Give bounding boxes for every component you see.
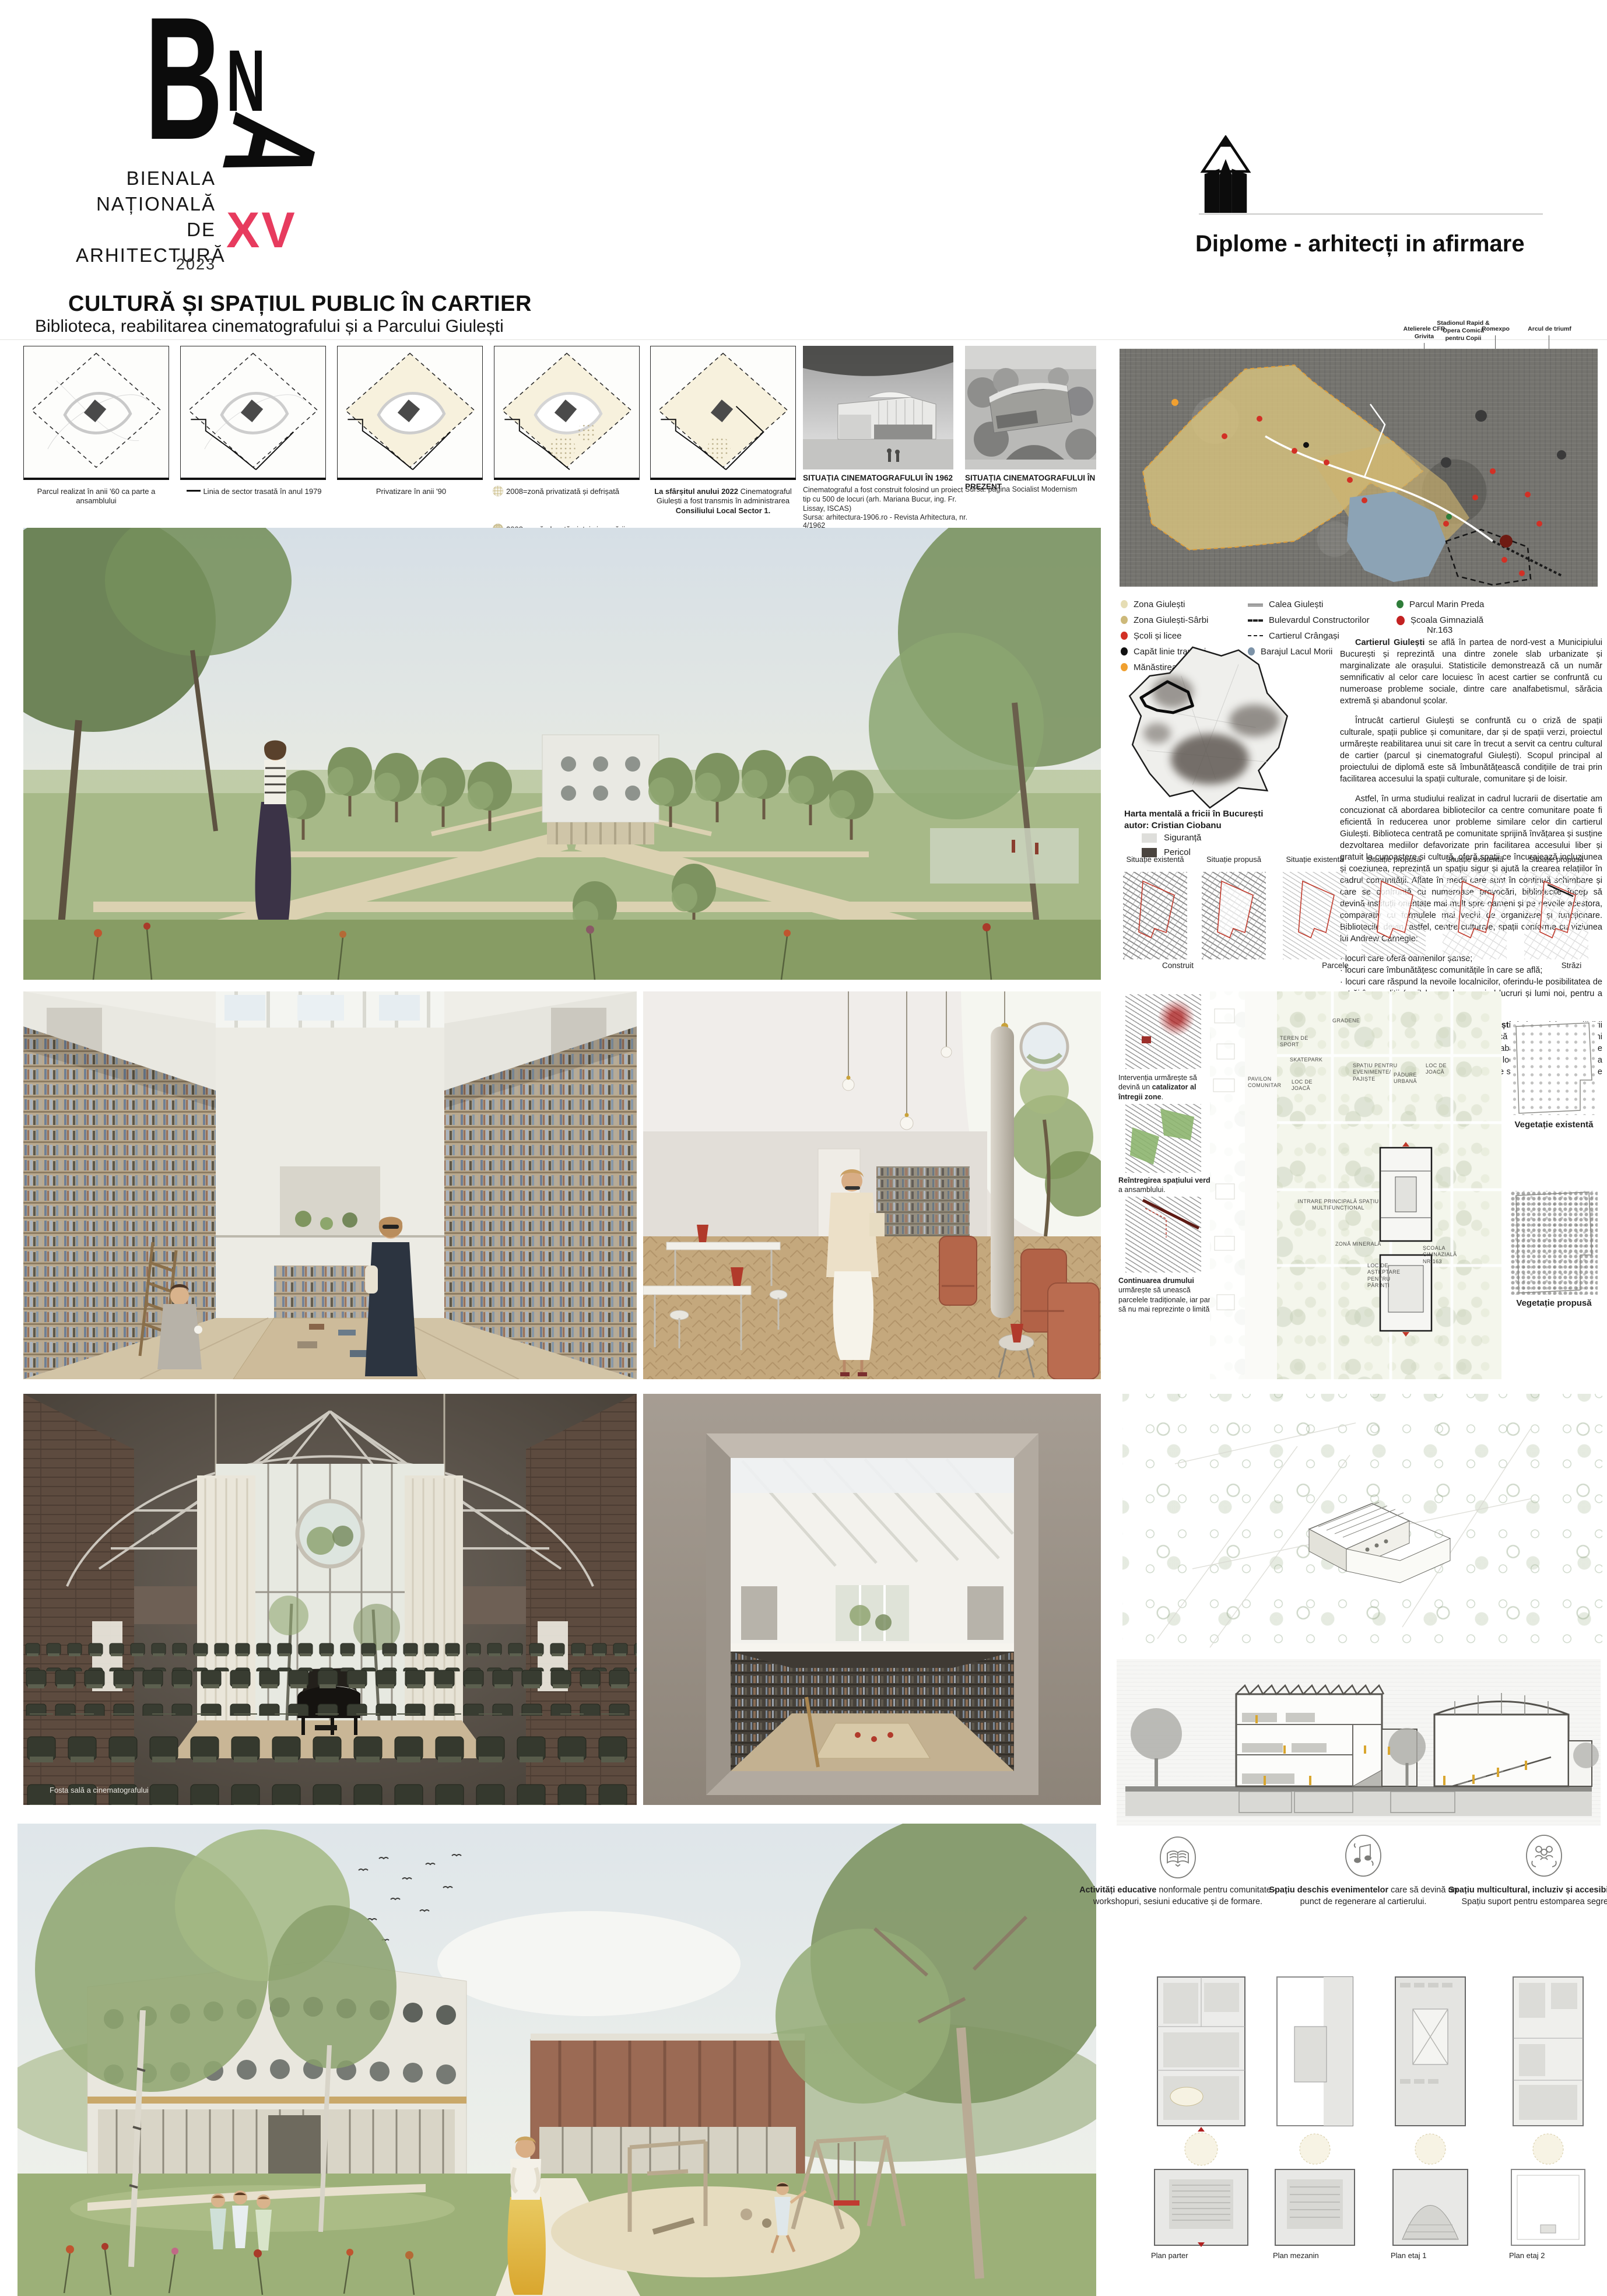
situatie-sketch-strazi-propus	[1524, 872, 1588, 959]
floor-plan-etaj-1	[1385, 1974, 1475, 2248]
history-caption-2: Linia de sector trasată în anul 1979	[198, 487, 327, 496]
dot-zone-swatch-icon	[493, 486, 503, 496]
render-park-view	[23, 528, 1101, 980]
mental-map-title: Harta mentală a fricii în București	[1124, 808, 1311, 820]
zone-swatch-icon	[1121, 616, 1128, 624]
park-axonometric-plan	[1122, 1394, 1602, 1650]
plan-label-etaj2: Plan etaj 2	[1509, 2251, 1545, 2260]
concept-caption-3: Continuarea drumului urmărește să uneasc…	[1118, 1276, 1220, 1314]
photo-1962-title: SITUAȚIA CINEMATOGRAFULUI ÎN 1962	[803, 474, 966, 482]
legend-item: Bulevardul Constructorilor	[1248, 615, 1385, 625]
vegetation-existing-plan	[1510, 1022, 1598, 1115]
render-concert-hall: Fosta sală a cinematografului	[23, 1394, 637, 1805]
mental-map-caption: Harta mentală a fricii în București auto…	[1124, 808, 1311, 831]
cinema-site-marker	[1500, 535, 1513, 548]
photo-cinema-present	[965, 346, 1096, 469]
concept-diagram-greenspace	[1125, 1104, 1201, 1173]
masterplan-label: ZONĂ MINERALĂ	[1335, 1241, 1399, 1247]
situatie-sketch-strazi-existent	[1443, 872, 1507, 959]
floor-plan-parter	[1140, 1974, 1265, 2248]
history-caption-1: Parcul realizat în anii '60 ca parte a a…	[23, 487, 169, 506]
biennale-name: BIENALA NAȚIONALĂ DE ARHITECTURĂ	[76, 166, 216, 268]
library-section	[1236, 1685, 1384, 1786]
vegetation-proposed-label: Vegetație propusă	[1493, 1298, 1607, 1309]
atrium-render-illustration	[23, 991, 637, 1379]
essay-paragraph-1: Cartierul Giulești se află în partea de …	[1340, 637, 1602, 707]
masterplan-label: LOC DE AȘTEPTARE PENTRU PĂRINȚI	[1367, 1263, 1411, 1289]
photo-present-source: Sursa: pagina Socialist Modernism	[965, 485, 1117, 493]
legend-label: Zona Giulești	[1134, 600, 1185, 609]
central-column	[991, 1026, 1014, 1318]
situatie-label-strazi: Străzi	[1545, 961, 1598, 971]
legend-item: Școala GimnazialăNr.163	[1397, 615, 1536, 635]
exterior-render-illustration	[17, 1824, 1096, 2296]
plan-label-mezanin: Plan mezanin	[1273, 2251, 1319, 2260]
building-mark	[1142, 1036, 1151, 1043]
masterplan-label: SKATEPARK	[1290, 1057, 1322, 1063]
situatie-header-2: Situație propusă	[1196, 855, 1272, 864]
situatie-header-6: Situație propusă	[1518, 855, 1594, 864]
award-category: Diplome - arhitecți in afirmare	[1195, 231, 1525, 257]
masterplan-label: PAVILON COMUNITAR	[1248, 1076, 1294, 1089]
concept-diagram-catalyst	[1125, 994, 1201, 1069]
tram-terminus-marker	[1303, 442, 1309, 448]
city-satellite-map	[1120, 349, 1598, 587]
mental-map-legend: Siguranță Pericol	[1142, 833, 1201, 857]
landmark-marker	[1557, 450, 1566, 460]
legend-label: Parcul Marin Preda	[1409, 600, 1484, 609]
logo-line: NAȚIONALĂ	[76, 191, 216, 217]
legend-label: Calea Giulești	[1269, 600, 1323, 609]
feature-events: Spațiu deschis evenimentelor care să dev…	[1264, 1885, 1462, 1908]
feature-education: Activități educative nonformale pentru c…	[1079, 1885, 1277, 1908]
seating-row-mid	[23, 1669, 637, 1716]
situatie-header-5: Situație existentă	[1437, 855, 1513, 864]
plan-label-etaj1: Plan etaj 1	[1391, 2251, 1426, 2260]
library-footprint	[1380, 1148, 1431, 1241]
photo-cinema-1962	[803, 346, 953, 469]
children-figures	[210, 2190, 272, 2251]
music-notes-icon	[1345, 1834, 1382, 1877]
situatie-header-3: Situație existentă	[1277, 855, 1353, 864]
masterplan-label: INTRARE PRINCIPALĂ SPAȚIU MULTIFUNCȚIONA…	[1292, 1198, 1385, 1212]
masterplan-label: ȘCOALA GIMNAZIALĂ NR.163	[1423, 1245, 1472, 1265]
competition-board: B N A BIENALA NAȚIONALĂ DE ARHITECTURĂ X…	[0, 0, 1607, 2296]
situatie-label-parcele: Parcele	[1309, 961, 1362, 971]
masterplan-label: LOC DE JOACĂ	[1292, 1079, 1324, 1092]
legend-item: Școli și licee	[1121, 631, 1240, 641]
situatie-sketch-parcele-propus	[1362, 872, 1426, 959]
vegetation-existing-label: Vegetație existentă	[1493, 1120, 1607, 1131]
logo-line: BIENALA	[76, 166, 216, 191]
situatie-header-4: Situație propusă	[1356, 855, 1431, 864]
photo-1962-caption: Cinematograful a fost construit folosind…	[803, 485, 972, 513]
project-subtitle: Biblioteca, reabilitarea cinematografulu…	[35, 317, 504, 336]
legend-label: Cartierul Crângași	[1269, 631, 1339, 641]
manastirea-chiajna-marker	[1171, 399, 1178, 406]
logo-letter-a: A	[197, 104, 346, 195]
masterplan-label: TEREN DE SPORT	[1280, 1035, 1321, 1049]
legend-item: Parcul Marin Preda	[1397, 600, 1536, 609]
history-diagram-1	[23, 346, 169, 480]
legend-item: Zona Giulești-Sârbi	[1121, 615, 1240, 625]
render-exterior-playground	[17, 1824, 1096, 2296]
situatie-header-1: Situație existentă	[1117, 855, 1193, 864]
history-diagram-5	[650, 346, 796, 480]
essay-paragraph-2: Întrucât cartierul Giulești se confruntă…	[1340, 715, 1602, 785]
map-legend-col3: Parcul Marin Preda Școala GimnazialăNr.1…	[1397, 600, 1536, 641]
history-caption-4a: 2008=zonă privatizată și defrișată	[506, 487, 640, 496]
history-caption-5: La sfârșitul anului 2022 Cinematograful …	[644, 487, 802, 516]
history-diagram-2	[180, 346, 326, 480]
reading-room-illustration	[643, 991, 1101, 1379]
basketball-court	[930, 828, 1079, 884]
bucharest-fear-map	[1122, 642, 1292, 814]
legend-item: Calea Giulești	[1248, 600, 1385, 609]
caption-bold-tail: Consiliului Local Sector 1.	[676, 506, 771, 515]
seating-row-far	[23, 1638, 637, 1671]
render-courtyard-void	[643, 1394, 1101, 1805]
catalyst-blob	[1157, 999, 1195, 1036]
legend-label: Școli și licee	[1134, 631, 1182, 641]
cinema-brick-volume	[531, 2034, 805, 2176]
cinema-render-caption: Fosta sală a cinematografului	[50, 1786, 149, 1794]
map-callout-3: Romexpo	[1475, 325, 1516, 333]
legend-label: Bulevardul Constructorilor	[1269, 615, 1370, 625]
history-diagram-4	[494, 346, 640, 480]
people-hands-icon	[1525, 1834, 1563, 1877]
site-masterplan: GRADENE TEREN DE SPORT SKATEPARK PAVILON…	[1210, 991, 1501, 1379]
concert-hall-illustration	[23, 1394, 637, 1805]
edition-xv: XV	[226, 202, 297, 260]
photo-1962-source: Sursa: arhitectura-1906.ro - Revista Arh…	[803, 513, 972, 530]
logo-line: DE	[76, 217, 216, 243]
map-callout-4: Arcul de triumf	[1525, 325, 1574, 333]
safety-swatch-icon	[1142, 833, 1157, 843]
project-title: CULTURĂ ȘI SPAȚIUL PUBLIC ÎN CARTIER	[68, 292, 532, 317]
park-render-illustration	[23, 528, 1101, 980]
district-swatch-icon	[1248, 635, 1263, 636]
mental-map-author: autor: Cristian Ciobanu	[1124, 820, 1311, 832]
concept-diagram-road	[1125, 1197, 1201, 1273]
cinema-section	[1434, 1693, 1592, 1786]
situatie-label-construit: Construit	[1152, 961, 1204, 971]
boulevard-swatch-icon	[1248, 619, 1263, 622]
pencil-icon	[1199, 135, 1252, 215]
legend-item: Zona Giulești	[1121, 600, 1240, 609]
plan-label-parter: Plan parter	[1151, 2251, 1188, 2260]
legend-item: Siguranță	[1142, 833, 1201, 843]
render-library-atrium	[23, 991, 637, 1379]
woman-yellow-figure	[507, 2137, 546, 2295]
vegetation-proposed-plan	[1510, 1191, 1598, 1295]
render-reading-room	[643, 991, 1101, 1379]
masterplan-label: GRADENE	[1332, 1018, 1360, 1024]
situatie-sketch-construit-propus	[1202, 872, 1266, 959]
park-swatch-icon	[1397, 600, 1404, 608]
edition-year: 2023	[76, 255, 216, 274]
zone-swatch-icon	[1121, 600, 1128, 608]
building-section-drawing	[1117, 1659, 1601, 1825]
distant-bookshelf	[876, 1166, 970, 1239]
floor-plan-etaj-2	[1504, 1974, 1592, 2248]
header-divider	[0, 339, 1607, 340]
road-swatch-icon	[1248, 604, 1263, 607]
award-underline	[1199, 213, 1543, 215]
school163-swatch-icon	[1397, 616, 1405, 625]
situatie-sketch-parcele-existent	[1283, 872, 1347, 959]
landmark-marker	[1475, 410, 1487, 422]
building-axonometric	[1309, 1502, 1450, 1583]
caption-bold-lead: La sfârșitul anului 2022	[654, 487, 738, 496]
feature-multicultural: Spațiu multicultural, incluziv și accesi…	[1445, 1885, 1607, 1908]
history-diagram-3	[337, 346, 483, 480]
parcul-marin-preda-marker	[1446, 514, 1452, 520]
library-building-distant	[542, 735, 659, 844]
open-book-icon	[1159, 1836, 1197, 1879]
history-caption-3: Privatizare în anii '90	[350, 487, 472, 496]
concept-caption-1: Intervenția urmărește să devină un catal…	[1118, 1073, 1217, 1102]
masterplan-label: LOC DE JOACĂ	[1426, 1063, 1458, 1076]
school-swatch-icon	[1121, 632, 1128, 640]
legend-label: Zona Giulești-Sârbi	[1134, 615, 1208, 625]
concept-caption-2: Reîntregirea spațiului verde a ansamblul…	[1118, 1176, 1217, 1195]
legend-label: Școala GimnazialăNr.163	[1410, 615, 1483, 635]
courtyard-illustration	[643, 1394, 1101, 1805]
landmark-marker	[1441, 457, 1451, 468]
legend-label: Siguranță	[1164, 833, 1201, 843]
situatie-sketch-construit-existent	[1123, 872, 1187, 959]
floor-plan-mezanin	[1268, 1974, 1362, 2248]
